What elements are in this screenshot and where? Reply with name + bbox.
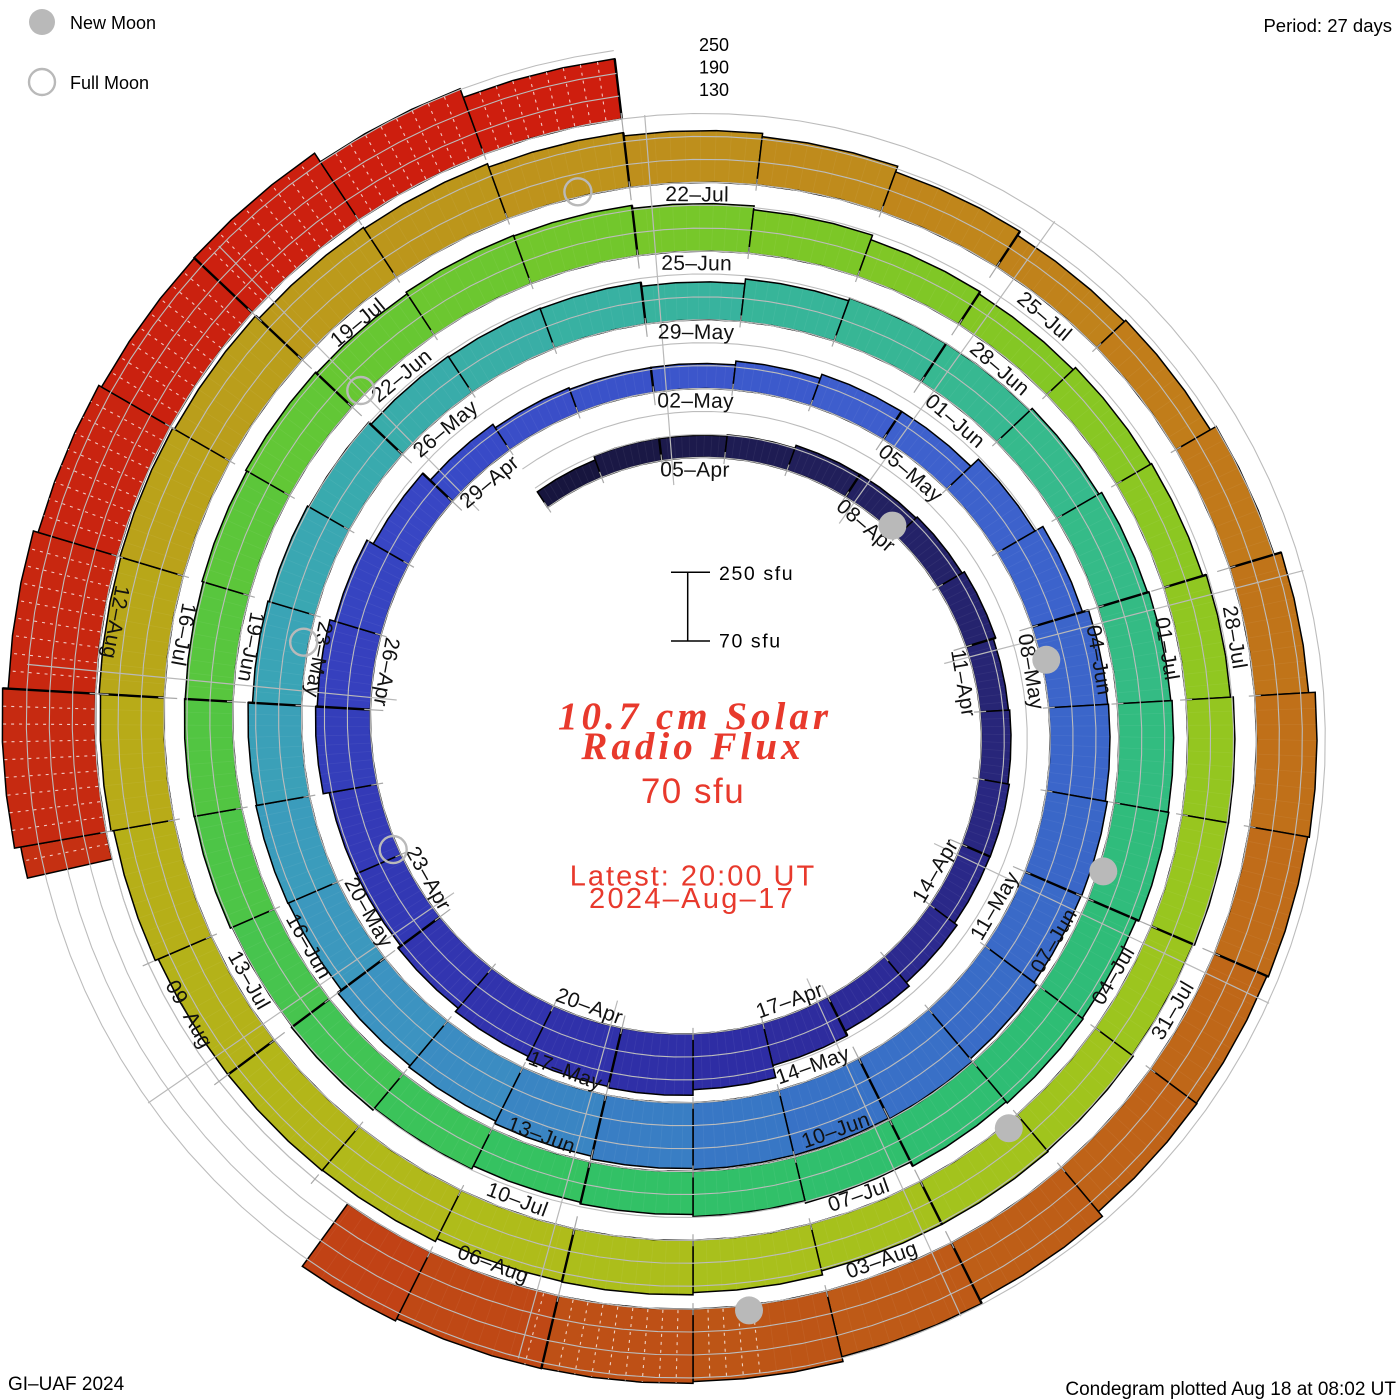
svg-text:New Moon: New Moon xyxy=(70,13,156,33)
svg-text:22–Jul: 22–Jul xyxy=(665,183,729,207)
svg-text:250: 250 xyxy=(699,35,729,55)
svg-text:05–Apr: 05–Apr xyxy=(660,458,730,482)
svg-text:Period: 27 days: Period: 27 days xyxy=(1263,15,1392,36)
svg-text:70 sfu: 70 sfu xyxy=(641,772,745,811)
svg-text:130: 130 xyxy=(699,80,729,100)
svg-text:2024–Aug–17: 2024–Aug–17 xyxy=(589,883,795,915)
svg-text:Full Moon: Full Moon xyxy=(70,73,149,93)
svg-text:GI–UAF 2024: GI–UAF 2024 xyxy=(8,1374,125,1395)
svg-text:Condegram plotted Aug 18 at 08: Condegram plotted Aug 18 at 08:02 UT xyxy=(1065,1379,1396,1400)
svg-text:250 sfu: 250 sfu xyxy=(719,563,794,585)
svg-text:Radio Flux: Radio Flux xyxy=(580,725,804,768)
svg-text:02–May: 02–May xyxy=(657,389,734,413)
svg-text:25–Jun: 25–Jun xyxy=(661,252,732,276)
svg-text:29–May: 29–May xyxy=(658,321,735,345)
svg-text:70 sfu: 70 sfu xyxy=(719,631,782,653)
svg-text:190: 190 xyxy=(699,58,729,78)
